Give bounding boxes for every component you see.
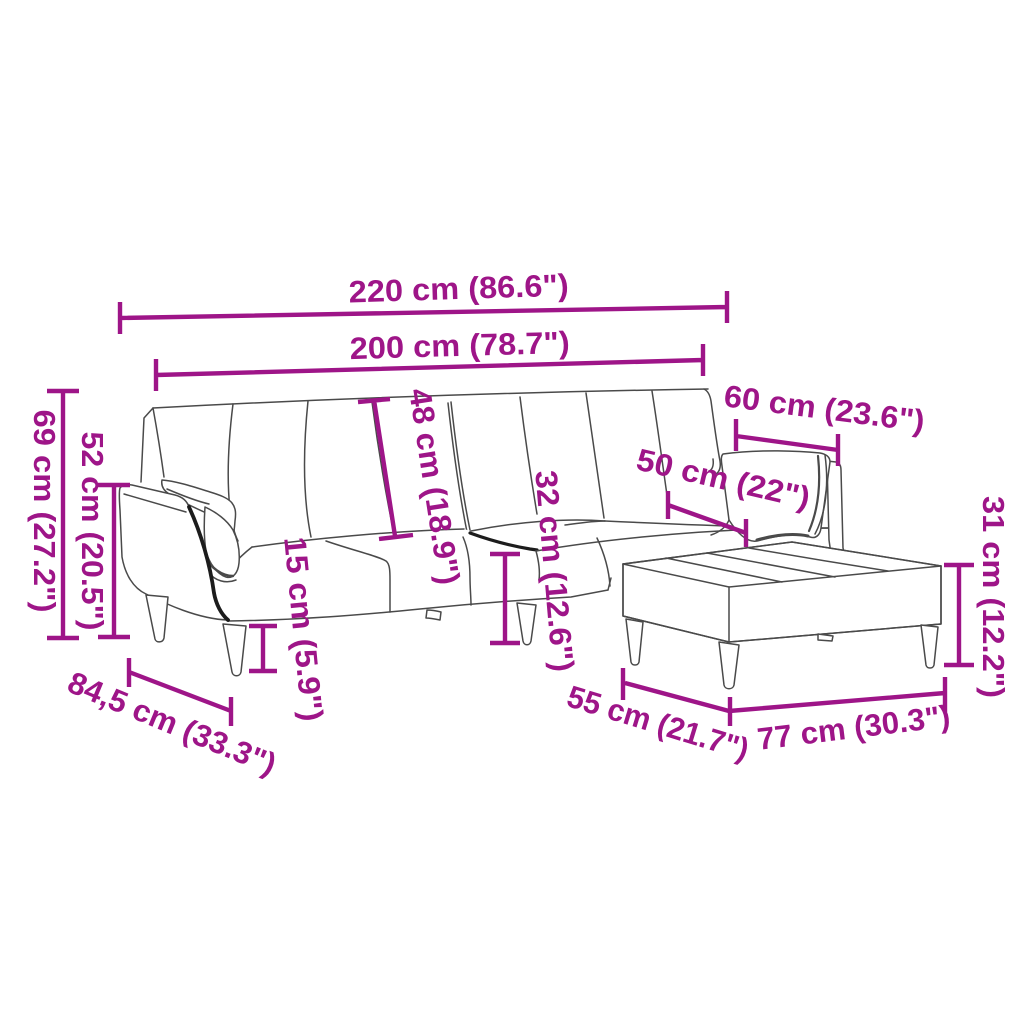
- svg-text:60 cm (23.6"): 60 cm (23.6"): [722, 378, 927, 438]
- svg-text:84,5 cm (33.3"): 84,5 cm (33.3"): [63, 665, 281, 782]
- svg-text:200 cm (78.7"): 200 cm (78.7"): [349, 325, 570, 366]
- svg-text:31 cm (12.2"): 31 cm (12.2"): [976, 496, 1011, 698]
- svg-text:69 cm (27.2"): 69 cm (27.2"): [27, 410, 62, 613]
- svg-text:220 cm (86.6"): 220 cm (86.6"): [348, 268, 569, 310]
- svg-text:52 cm (20.5"): 52 cm (20.5"): [75, 432, 110, 631]
